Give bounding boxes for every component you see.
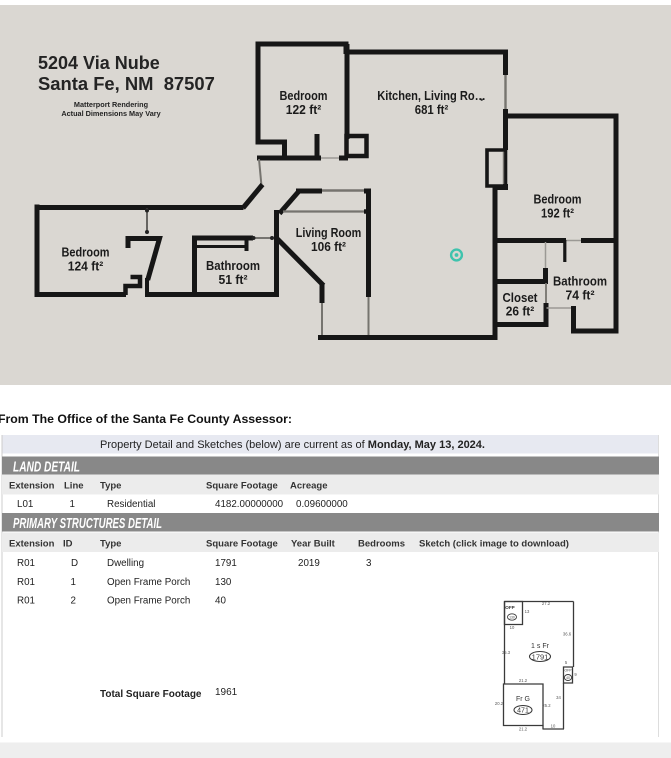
svg-text:Living Room: Living Room <box>296 225 362 240</box>
svg-text:1791: 1791 <box>532 653 549 662</box>
svg-text:681 ft²: 681 ft² <box>415 102 449 117</box>
svg-text:Santa Fe, NM 87507: Santa Fe, NM 87507 <box>38 73 215 94</box>
svg-text:21.2: 21.2 <box>519 727 528 732</box>
svg-text:10: 10 <box>551 724 556 729</box>
svg-text:OFP: OFP <box>565 669 573 673</box>
svg-text:Bedroom: Bedroom <box>280 88 328 103</box>
svg-text:Bathroom: Bathroom <box>553 274 607 289</box>
svg-text:Extension: Extension <box>9 481 55 492</box>
svg-text:Property Detail and Sketches (: Property Detail and Sketches (below) are… <box>100 439 485 451</box>
svg-text:34: 34 <box>556 695 561 700</box>
svg-text:36.6: 36.6 <box>563 632 572 637</box>
svg-text:Acreage: Acreage <box>290 481 328 492</box>
svg-text:0.09600000: 0.09600000 <box>296 499 348 510</box>
svg-text:LAND DETAIL: LAND DETAIL <box>13 460 80 476</box>
svg-text:2: 2 <box>71 596 76 607</box>
svg-text:1 s Fr: 1 s Fr <box>531 643 550 650</box>
svg-text:122 ft²: 122 ft² <box>286 102 322 117</box>
svg-text:130: 130 <box>215 577 232 588</box>
svg-text:Line: Line <box>64 481 84 492</box>
svg-text:35.3: 35.3 <box>502 650 511 655</box>
svg-text:Year Built: Year Built <box>291 539 336 550</box>
svg-text:Total Square Footage: Total Square Footage <box>100 689 202 700</box>
svg-text:D: D <box>71 558 78 569</box>
svg-text:PRIMARY STRUCTURES DETAIL: PRIMARY STRUCTURES DETAIL <box>13 516 162 532</box>
svg-text:ID: ID <box>63 539 73 550</box>
svg-text:Bathroom: Bathroom <box>206 258 260 273</box>
svg-text:26 ft²: 26 ft² <box>506 304 535 319</box>
svg-text:L01: L01 <box>17 499 33 510</box>
svg-text:10: 10 <box>510 625 515 630</box>
svg-text:40: 40 <box>215 596 226 607</box>
svg-text:Matterport Rendering: Matterport Rendering <box>74 100 148 109</box>
svg-text:Open Frame Porch: Open Frame Porch <box>107 577 190 588</box>
svg-text:R01: R01 <box>17 577 35 588</box>
svg-text:R01: R01 <box>17 558 35 569</box>
svg-text:Bedroom: Bedroom <box>534 192 582 207</box>
svg-text:124 ft²: 124 ft² <box>68 259 104 274</box>
svg-text:1961: 1961 <box>215 687 238 698</box>
svg-text:From The Office of the Santa F: From The Office of the Santa Fe County A… <box>0 412 292 426</box>
svg-text:Square Footage: Square Footage <box>206 481 278 492</box>
svg-text:1791: 1791 <box>215 558 237 569</box>
svg-text:25.2: 25.2 <box>542 703 551 708</box>
svg-text:5204 Via Nube: 5204 Via Nube <box>38 53 160 73</box>
svg-text:74 ft²: 74 ft² <box>566 288 596 303</box>
svg-text:3: 3 <box>366 558 372 569</box>
svg-text:2019: 2019 <box>298 558 320 569</box>
svg-text:Bedrooms: Bedrooms <box>358 539 405 550</box>
svg-text:Fr G: Fr G <box>516 696 530 703</box>
svg-text:192 ft²: 192 ft² <box>541 206 575 221</box>
svg-text:Residential: Residential <box>107 499 155 510</box>
svg-text:1: 1 <box>71 577 76 588</box>
svg-text:Type: Type <box>100 539 121 550</box>
svg-text:Kitchen, Living Ro…: Kitchen, Living Ro… <box>377 88 486 103</box>
svg-text:21.2: 21.2 <box>519 678 528 683</box>
svg-text:Actual Dimensions May Vary: Actual Dimensions May Vary <box>61 109 161 118</box>
svg-text:Square Footage: Square Footage <box>206 539 278 550</box>
svg-text:130: 130 <box>509 616 515 620</box>
svg-text:20.2: 20.2 <box>495 701 504 706</box>
svg-text:27.2: 27.2 <box>542 601 551 606</box>
svg-text:OFP: OFP <box>505 605 514 610</box>
svg-text:Bedroom: Bedroom <box>62 245 110 260</box>
svg-text:51 ft²: 51 ft² <box>219 272 249 287</box>
svg-text:106 ft²: 106 ft² <box>311 239 347 254</box>
svg-text:R01: R01 <box>17 596 35 607</box>
svg-text:471: 471 <box>517 708 529 715</box>
svg-text:1: 1 <box>70 499 75 510</box>
svg-text:Extension: Extension <box>9 539 55 550</box>
svg-text:Sketch (click image to downloa: Sketch (click image to download) <box>419 539 569 550</box>
svg-text:40: 40 <box>566 676 570 680</box>
svg-text:Type: Type <box>100 481 121 492</box>
svg-text:Dwelling: Dwelling <box>107 558 144 569</box>
svg-text:4182.00000000: 4182.00000000 <box>215 499 284 510</box>
svg-text:13: 13 <box>525 609 530 614</box>
svg-text:Open Frame Porch: Open Frame Porch <box>107 596 190 607</box>
